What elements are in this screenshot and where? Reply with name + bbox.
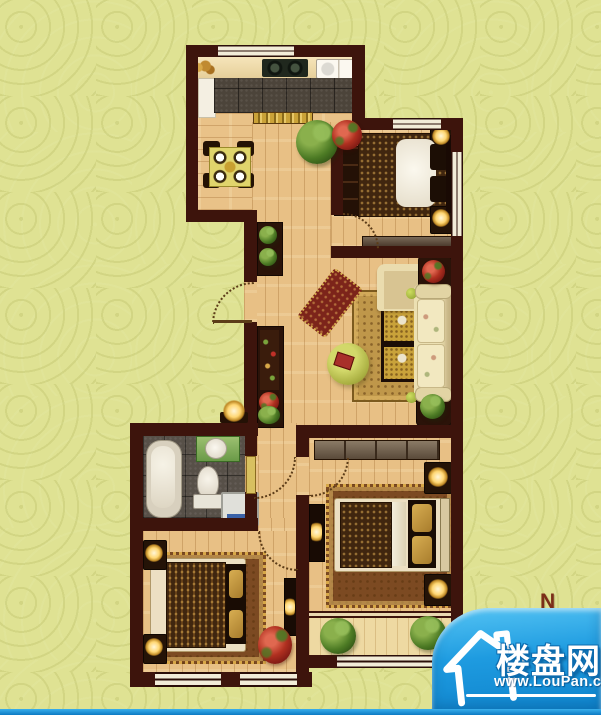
nightstand-lamp-icon	[145, 638, 163, 656]
bottom-blue-bar	[0, 709, 601, 715]
stove-icon	[262, 59, 308, 77]
hall-lamp-icon	[223, 400, 245, 422]
wall	[130, 423, 143, 687]
wall	[130, 518, 258, 531]
window	[393, 118, 441, 130]
entry-door-arc	[212, 282, 254, 324]
wash-basin-icon	[205, 438, 227, 459]
kitchen-tile-floor	[214, 78, 352, 113]
bed-pillow	[229, 570, 243, 598]
wall	[296, 495, 309, 672]
cabinet-plant-icon	[258, 406, 280, 424]
threshold-strip	[253, 112, 313, 124]
coffee-table	[381, 306, 417, 344]
floorplan-page: N 楼盘网 www.LouPan.com	[0, 0, 601, 715]
window	[337, 655, 433, 668]
wall	[296, 425, 463, 438]
logo-underline	[466, 694, 596, 697]
bathtub-inner	[151, 446, 175, 508]
sofa-arm	[415, 284, 452, 299]
wall	[186, 45, 198, 222]
coffee-table	[381, 344, 417, 382]
bed-pillow	[229, 610, 243, 638]
window	[155, 672, 221, 687]
bed-headboard	[440, 498, 450, 572]
balcony-plant-icon	[320, 618, 356, 654]
site-url: www.LouPan.com	[494, 674, 601, 690]
tv-glow	[285, 596, 295, 618]
window	[451, 152, 463, 236]
wall	[244, 210, 257, 282]
window	[218, 45, 294, 57]
doorway-floor	[258, 518, 296, 531]
bedroom-corner-flowers-icon	[332, 120, 362, 150]
bed-duvet	[166, 562, 226, 648]
bed-fold-band	[392, 502, 406, 566]
kitchen-sink-icon	[316, 59, 354, 79]
flowers-icon	[258, 626, 292, 664]
toilet-tank	[193, 494, 223, 509]
loupan-watermark-logo: 楼盘网 www.LouPan.com	[432, 608, 601, 715]
sofa-end-plant-icon	[420, 394, 445, 419]
tv-glow	[311, 520, 322, 544]
nightstand-lamp-icon	[145, 544, 163, 562]
window	[240, 672, 297, 687]
hall-plant-icon	[296, 120, 338, 164]
cabinet-contents	[260, 330, 279, 390]
nightstand-lamp-icon	[428, 579, 448, 599]
bed-pillow	[412, 536, 432, 564]
sofa-end-flowers-icon	[422, 260, 445, 283]
dining-table	[209, 147, 251, 187]
wall	[296, 438, 309, 457]
shelf-plant-icon	[259, 248, 277, 266]
wall	[245, 436, 257, 456]
bed-duvet	[340, 502, 392, 568]
doorway-floor	[331, 215, 343, 246]
wall	[130, 423, 258, 436]
nightstand-lamp-icon	[428, 467, 448, 487]
sofa-cushion	[417, 344, 445, 388]
doorway-floor	[296, 457, 309, 495]
nightstand-lamp-icon	[432, 209, 450, 227]
sofa-cushion	[417, 299, 445, 343]
shelf-plant-icon	[259, 226, 277, 244]
entry-door-leaf	[213, 320, 252, 323]
bed-pillow	[412, 504, 432, 532]
